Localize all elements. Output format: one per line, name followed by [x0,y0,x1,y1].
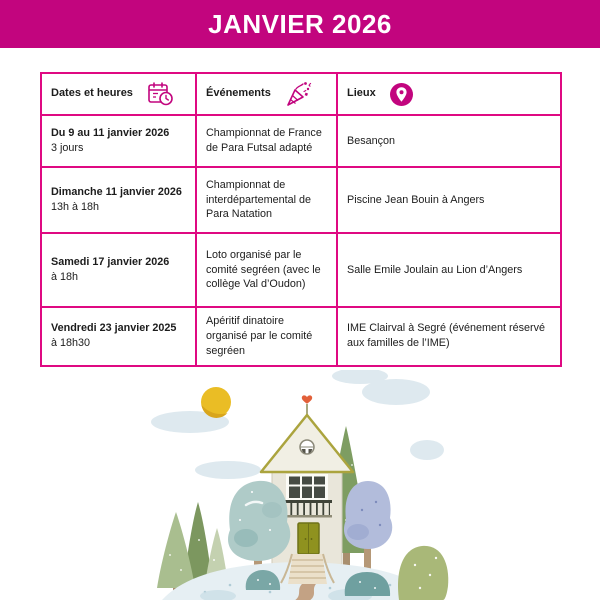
place-cell: Salle Emile Joulain au Lion d’Angers [337,233,561,307]
event-row: Dimanche 11 janvier 2026 13h à 18h Champ… [41,167,561,233]
party-popper-icon [284,80,314,108]
place-cell: Besançon [337,115,561,167]
column-label-events: Événements [206,86,271,101]
column-header-places: Lieux [337,73,561,115]
location-pin-icon [389,82,414,107]
blue-tree [344,481,392,572]
events-table: Dates et heures Événements [40,72,562,367]
date-cell: Du 9 au 11 janvier 2026 3 jours [41,115,196,167]
event-cell: Championnat de interdépartemental de Par… [196,167,337,233]
event-cell: Apéritif dinatoire organisé par le comit… [196,307,337,366]
column-header-dates: Dates et heures [41,73,196,115]
event-time: 3 jours [51,141,187,156]
month-banner: JANVIER 2026 [0,0,600,48]
event-date: Du 9 au 11 janvier 2026 [51,126,187,141]
event-row: Du 9 au 11 janvier 2026 3 jours Champion… [41,115,561,167]
event-time: 13h à 18h [51,200,187,215]
event-row: Vendredi 23 janvier 2025 à 18h30 Apériti… [41,307,561,366]
newsletter-page: { "banner": { "title": "JANVIER 2026" },… [0,0,600,600]
event-row: Samedi 17 janvier 2026 à 18h Loto organi… [41,233,561,307]
house-illustration [0,370,600,600]
event-time: à 18h [51,270,187,285]
date-cell: Vendredi 23 janvier 2025 à 18h30 [41,307,196,366]
place-cell: IME Clairval à Segré (événement réservé … [337,307,561,366]
month-title: JANVIER 2026 [208,9,392,40]
calendar-clock-icon [146,81,176,107]
heart [302,395,312,403]
date-cell: Samedi 17 janvier 2026 à 18h [41,233,196,307]
sage-bush [398,546,448,600]
place-cell: Piscine Jean Bouin à Angers [337,167,561,233]
event-date: Vendredi 23 janvier 2025 [51,321,187,336]
balcony [282,500,332,518]
event-cell: Loto organisé par le comité segréen (ave… [196,233,337,307]
column-header-events: Événements [196,73,337,115]
event-date: Samedi 17 janvier 2026 [51,255,187,270]
column-label-dates: Dates et heures [51,86,133,101]
event-date: Dimanche 11 janvier 2026 [51,185,187,200]
date-cell: Dimanche 11 janvier 2026 13h à 18h [41,167,196,233]
event-cell: Championnat de France de Para Futsal ada… [196,115,337,167]
event-time: à 18h30 [51,336,187,351]
table-header-row: Dates et heures Événements [41,73,561,115]
column-label-places: Lieux [347,86,376,101]
